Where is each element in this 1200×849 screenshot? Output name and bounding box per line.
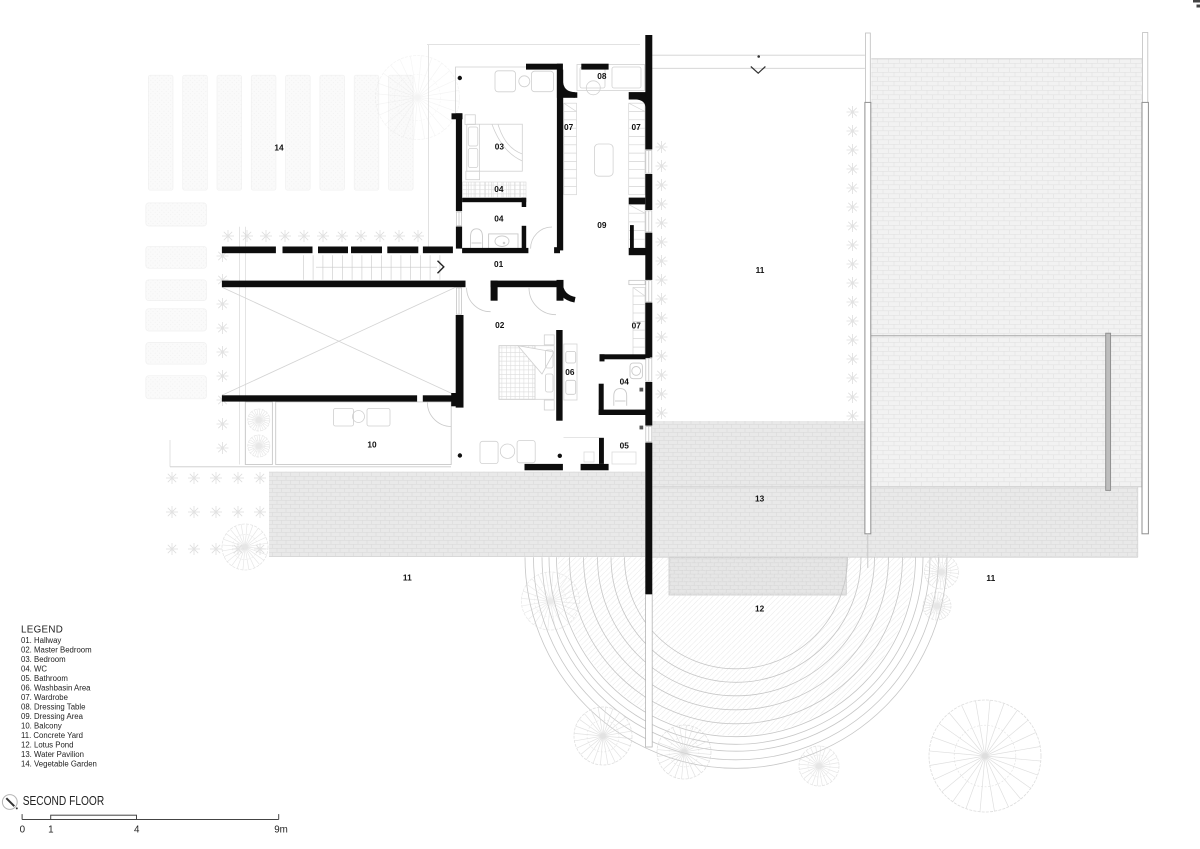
svg-text:13. Water Pavilion: 13. Water Pavilion — [21, 750, 84, 759]
svg-text:08: 08 — [597, 71, 607, 81]
svg-text:11: 11 — [986, 573, 995, 583]
svg-text:LEGEND: LEGEND — [21, 625, 63, 636]
svg-text:01: 01 — [494, 259, 504, 269]
svg-text:09. Dressing Area: 09. Dressing Area — [21, 712, 84, 721]
svg-text:0: 0 — [20, 824, 26, 835]
svg-text:11. Concrete Yard: 11. Concrete Yard — [21, 731, 83, 740]
svg-text:09: 09 — [597, 220, 607, 230]
svg-text:03: 03 — [495, 142, 505, 152]
svg-text:06. Washbasin Area: 06. Washbasin Area — [21, 683, 91, 692]
svg-text:04: 04 — [494, 214, 504, 224]
svg-text:04. WC: 04. WC — [21, 664, 47, 673]
svg-text:01. Hallway: 01. Hallway — [21, 636, 61, 645]
svg-text:07. Wardrobe: 07. Wardrobe — [21, 693, 68, 702]
svg-text:11: 11 — [756, 265, 765, 275]
svg-text:04: 04 — [494, 184, 504, 194]
svg-text:02: 02 — [495, 320, 505, 330]
svg-text:11: 11 — [403, 573, 412, 583]
svg-text:1: 1 — [48, 824, 53, 835]
svg-text:07: 07 — [631, 122, 641, 132]
svg-text:10. Balcony: 10. Balcony — [21, 722, 62, 731]
svg-text:14: 14 — [274, 143, 284, 153]
svg-text:05: 05 — [620, 440, 630, 450]
svg-text:9m: 9m — [274, 824, 288, 835]
svg-text:13: 13 — [755, 493, 765, 503]
svg-text:12: 12 — [755, 604, 765, 614]
svg-text:12. Lotus Pond: 12. Lotus Pond — [21, 741, 73, 750]
svg-text:07: 07 — [564, 122, 574, 132]
svg-text:05. Bathroom: 05. Bathroom — [21, 674, 68, 683]
svg-text:10: 10 — [367, 439, 377, 449]
svg-text:SECOND FLOOR: SECOND FLOOR — [23, 794, 105, 808]
svg-text:06: 06 — [565, 367, 575, 377]
svg-text:02. Master Bedroom: 02. Master Bedroom — [21, 645, 92, 654]
svg-text:4: 4 — [134, 824, 140, 835]
svg-text:08. Dressing Table: 08. Dressing Table — [21, 703, 85, 712]
svg-text:07: 07 — [632, 320, 642, 330]
svg-text:03. Bedroom: 03. Bedroom — [21, 655, 66, 664]
svg-text:04: 04 — [620, 377, 630, 387]
svg-text:14. Vegetable Garden: 14. Vegetable Garden — [21, 760, 97, 769]
